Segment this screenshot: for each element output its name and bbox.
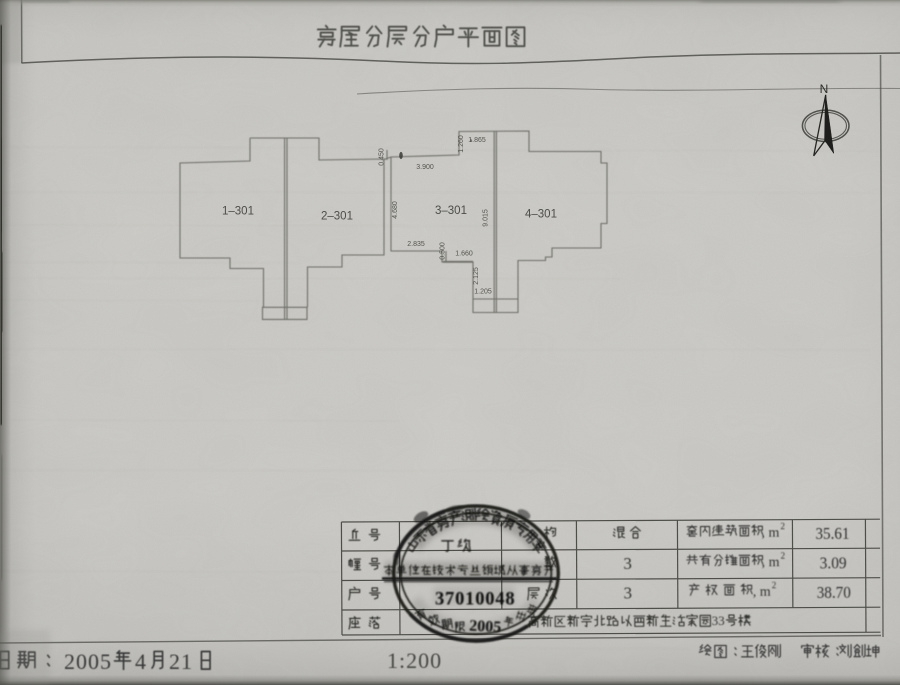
svg-text:2.125: 2.125: [473, 267, 480, 285]
svg-text:2: 2: [780, 521, 785, 531]
svg-text:1.205: 1.205: [474, 289, 492, 296]
svg-text:0.450: 0.450: [379, 148, 386, 166]
svg-text:4: 4: [135, 649, 146, 674]
svg-text:33: 33: [712, 613, 725, 628]
svg-text:2: 2: [772, 580, 777, 590]
svg-text:N: N: [820, 82, 829, 96]
svg-text:4.680: 4.680: [392, 201, 399, 219]
svg-text:, m: , m: [761, 526, 779, 541]
svg-text:2–301: 2–301: [321, 211, 353, 223]
svg-text:, m: , m: [753, 585, 771, 600]
svg-text:3.09: 3.09: [820, 553, 847, 572]
svg-text:4–301: 4–301: [525, 209, 557, 221]
svg-text:1–301: 1–301: [222, 206, 254, 218]
svg-text:9.015: 9.015: [483, 209, 490, 227]
svg-text:1.865: 1.865: [468, 137, 486, 144]
svg-text:3.900: 3.900: [416, 164, 434, 171]
svg-text:3: 3: [623, 554, 632, 573]
svg-text:35.61: 35.61: [815, 524, 849, 543]
svg-text:21: 21: [169, 649, 193, 674]
svg-text:2005: 2005: [64, 649, 112, 674]
svg-text:38.70: 38.70: [817, 583, 851, 602]
svg-text:2.835: 2.835: [407, 241, 425, 248]
svg-text:1:200: 1:200: [387, 648, 442, 673]
svg-text:0.500: 0.500: [440, 242, 447, 260]
svg-text:3–301: 3–301: [435, 205, 467, 217]
svg-text:3: 3: [623, 583, 632, 602]
svg-text:1.260: 1.260: [458, 135, 465, 153]
svg-text:, m: , m: [762, 555, 780, 570]
svg-text:2: 2: [781, 551, 786, 561]
svg-text:2005: 2005: [469, 618, 502, 637]
svg-text:1.660: 1.660: [455, 251, 473, 258]
svg-text:37010048: 37010048: [435, 590, 515, 610]
